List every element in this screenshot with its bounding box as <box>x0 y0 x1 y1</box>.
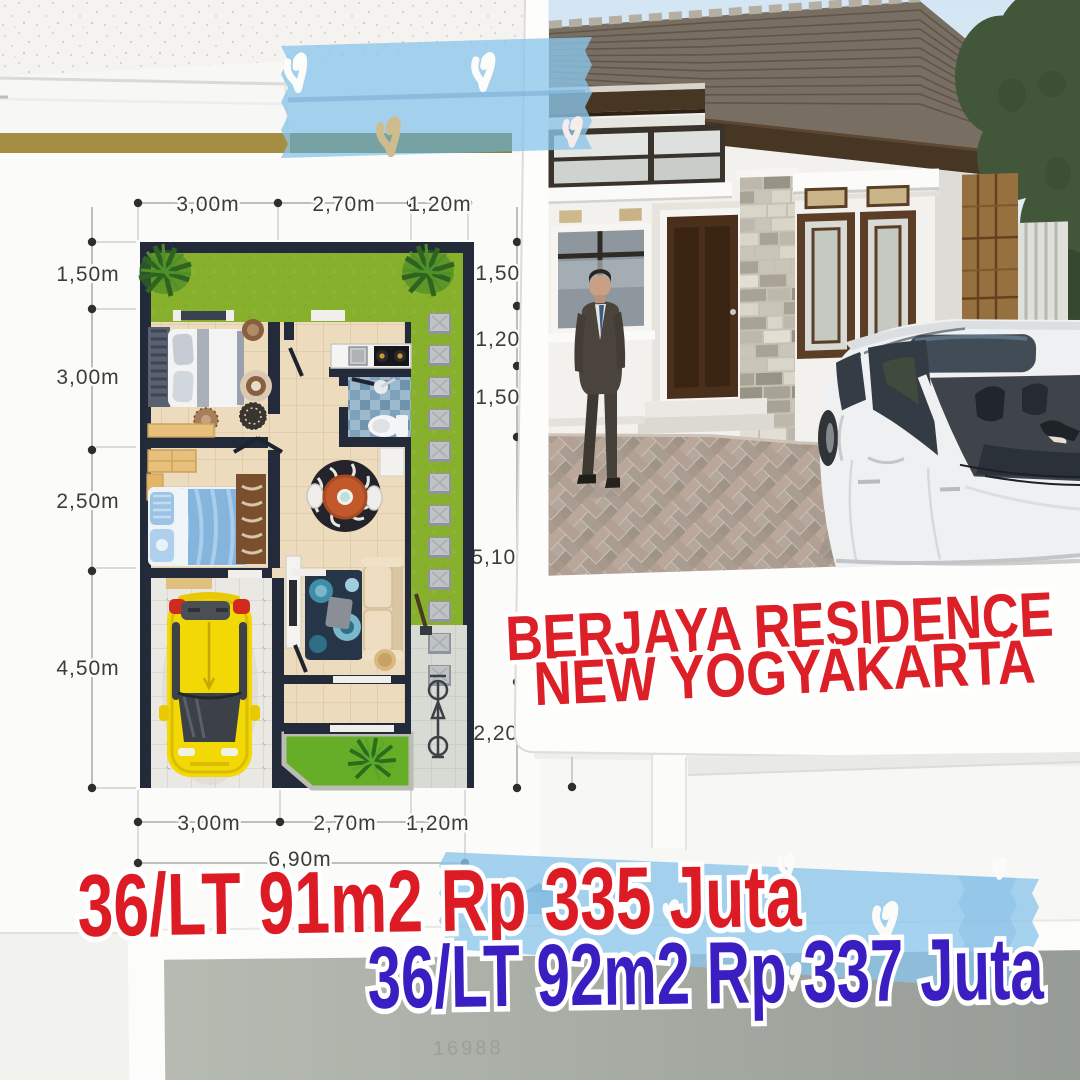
svg-text:3,00m: 3,00m <box>56 366 119 389</box>
svg-text:2,70m: 2,70m <box>313 812 376 835</box>
svg-text:1,20m: 1,20m <box>406 812 469 835</box>
svg-text:4,50m: 4,50m <box>56 657 119 680</box>
svg-text:3,00m: 3,00m <box>177 812 240 835</box>
svg-text:3,00m: 3,00m <box>176 193 239 216</box>
svg-text:2,50m: 2,50m <box>56 490 119 513</box>
svg-text:36/LT 92m2 Rp 337 Juta: 36/LT 92m2 Rp 337 Juta <box>367 919 1045 1027</box>
svg-text:1,20m: 1,20m <box>408 193 471 216</box>
svg-text:2,70m: 2,70m <box>312 193 375 216</box>
svg-text:1,50m: 1,50m <box>56 263 119 286</box>
svg-text:16988: 16988 <box>433 1037 504 1060</box>
